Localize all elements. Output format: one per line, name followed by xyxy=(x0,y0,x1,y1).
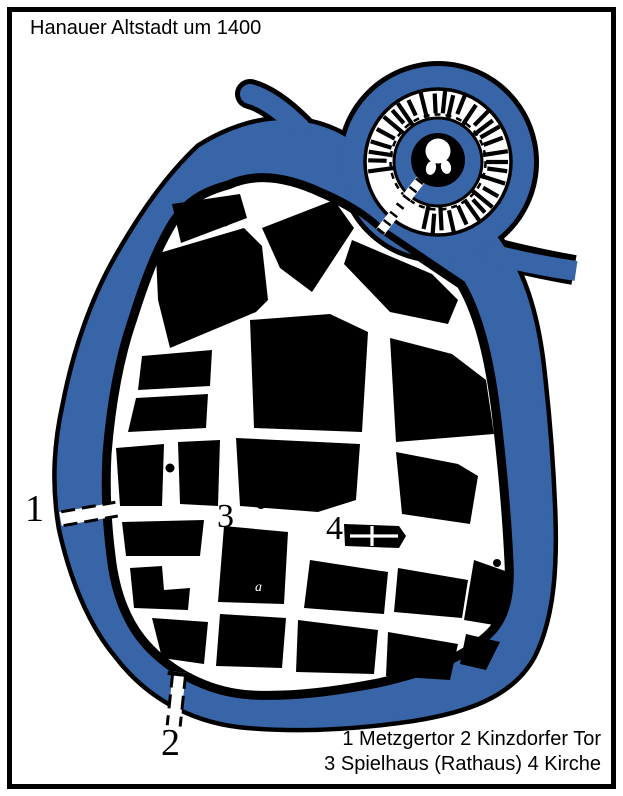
city-block xyxy=(304,560,388,614)
city-block xyxy=(138,350,212,390)
map-dot xyxy=(431,413,439,421)
map-dot xyxy=(166,464,175,473)
city-block xyxy=(130,566,190,610)
city-block xyxy=(178,440,220,506)
city-block xyxy=(390,338,494,442)
city-block xyxy=(396,452,478,524)
keep-tower-head xyxy=(426,139,451,164)
map-dot xyxy=(390,660,398,668)
castle-hut-tick xyxy=(435,94,436,114)
city-block xyxy=(122,520,204,556)
map-dot xyxy=(191,274,199,282)
castle-hut-tick xyxy=(487,169,507,172)
legend-line-2: 3 Spielhaus (Rathaus) 4 Kirche xyxy=(324,752,601,777)
castle-hut-tick xyxy=(440,207,441,230)
castle-hut-tick xyxy=(433,214,435,234)
city-block xyxy=(128,394,208,432)
castle-hut-tick xyxy=(443,91,445,113)
map-dot xyxy=(221,218,230,227)
city-block xyxy=(250,314,368,432)
label-kirche: 4 xyxy=(326,510,343,548)
page-title: Hanauer Altstadt um 1400 xyxy=(30,17,261,40)
label-gate-west: 1 xyxy=(25,487,44,531)
city-block xyxy=(262,200,354,292)
label-annotation-a: a xyxy=(255,580,262,596)
city-block xyxy=(464,560,508,626)
city-block xyxy=(218,526,288,604)
gate-lintel xyxy=(168,673,192,676)
city-block xyxy=(394,568,468,618)
church xyxy=(344,524,406,548)
legend-line-1: 1 Metzgertor 2 Kinzdorfer Tor xyxy=(324,727,601,752)
map-dot xyxy=(493,559,501,567)
map-svg xyxy=(0,0,623,796)
city-block xyxy=(116,444,164,506)
label-gate-south: 2 xyxy=(161,721,180,765)
map-legend: 1 Metzgertor 2 Kinzdorfer Tor 3 Spielhau… xyxy=(324,727,601,777)
city-block xyxy=(296,620,378,674)
castle-keep xyxy=(411,133,465,187)
city-block xyxy=(216,614,286,668)
map-dot xyxy=(256,499,266,509)
castle-hut-tick xyxy=(368,160,386,161)
map-page: { "title": "Hanauer Altstadt um 1400", "… xyxy=(0,0,623,796)
city-block xyxy=(236,438,360,512)
label-spielhaus: 3 xyxy=(217,498,234,536)
city-block xyxy=(386,632,458,680)
